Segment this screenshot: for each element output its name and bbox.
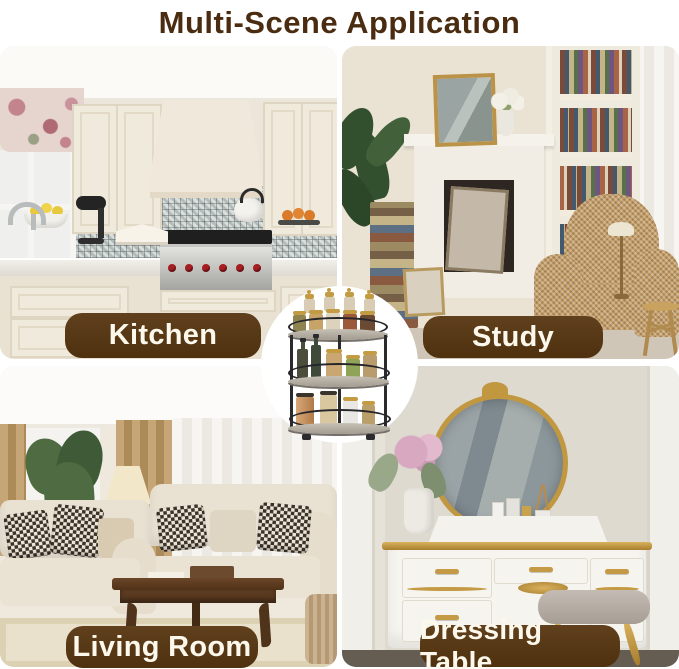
checkered-pillow: [3, 509, 53, 561]
checkered-pillow: [50, 504, 105, 559]
drawer-gold-handle: [529, 567, 553, 572]
lamp-stem: [620, 236, 623, 294]
living-striped-armchair: [305, 594, 337, 664]
side-table-top: [642, 302, 679, 311]
table-apron: [120, 590, 276, 603]
rack-foot: [366, 434, 375, 440]
dressing-flower-bouquet: [390, 430, 450, 474]
kitchen-stand-mixer: [76, 196, 106, 244]
multi-scene-application-banner: Multi-Scene Application: [0, 0, 679, 669]
stove-knob: [185, 264, 193, 272]
vanity-upper-drawer-deck: [428, 516, 608, 544]
study-scene-label: Study: [423, 316, 603, 358]
study-floor-lamp: [608, 222, 636, 302]
kitchen-fruit-plate: [278, 220, 320, 225]
dressing-vase: [404, 488, 434, 534]
stove-knob: [253, 264, 261, 272]
plain-pillow: [210, 510, 256, 552]
kitchen-stove: [160, 222, 272, 308]
kitchen-scene-label: Kitchen: [65, 313, 261, 358]
vanity-drawer: [402, 558, 492, 598]
spice-jar: [344, 297, 355, 311]
kitchen-faucet-stem: [31, 214, 36, 230]
rack-foot: [302, 434, 311, 440]
stool-gold-leg: [622, 620, 642, 666]
drawer-gold-handle: [605, 569, 629, 574]
vanity-gold-top-trim: [382, 542, 652, 550]
kitchen-orange-fruit: [293, 208, 304, 219]
study-flower-vase: [498, 110, 514, 136]
bookshelf-row: [560, 50, 632, 100]
mixer-stand: [98, 208, 104, 238]
study-leaning-artwork: [445, 186, 509, 274]
side-table-leg: [668, 310, 678, 356]
checkered-pillow: [256, 502, 312, 554]
stove-cooktop: [160, 230, 272, 244]
product-highlight-circle: [261, 286, 418, 443]
dressing-wall-pilaster: [647, 366, 679, 667]
study-gold-mirror: [433, 73, 497, 147]
tier-shelf: [288, 376, 389, 387]
vanity-drawer: [494, 558, 588, 584]
checkered-pillow: [156, 504, 208, 553]
study-small-frame: [403, 267, 445, 317]
stove-knob: [219, 264, 227, 272]
stove-knob: [168, 264, 176, 272]
side-table-leg: [643, 310, 653, 356]
bookshelf-row: [560, 108, 632, 158]
mixer-base: [78, 238, 104, 244]
stove-lower-drawer: [160, 290, 276, 312]
stove-knob: [202, 264, 210, 272]
living-room-scene-label: Living Room: [66, 626, 258, 668]
stove-knob: [236, 264, 244, 272]
study-white-flowers: [490, 88, 524, 112]
lamp-base: [614, 294, 629, 299]
rotating-spice-rack-icon: [288, 289, 392, 441]
tier-shelf: [288, 423, 390, 434]
kitchen-range-hood: [150, 100, 262, 198]
table-leg: [258, 603, 271, 648]
drawer-gold-handle: [435, 569, 459, 574]
table-top: [112, 578, 284, 590]
lamp-glass-shade: [608, 222, 634, 236]
dressing-table-scene-label: Dressing Table: [420, 625, 620, 667]
drawer-gold-wave-trim: [407, 587, 487, 591]
study-wicker-side-table: [642, 302, 679, 358]
page-title: Multi-Scene Application: [0, 1, 679, 45]
